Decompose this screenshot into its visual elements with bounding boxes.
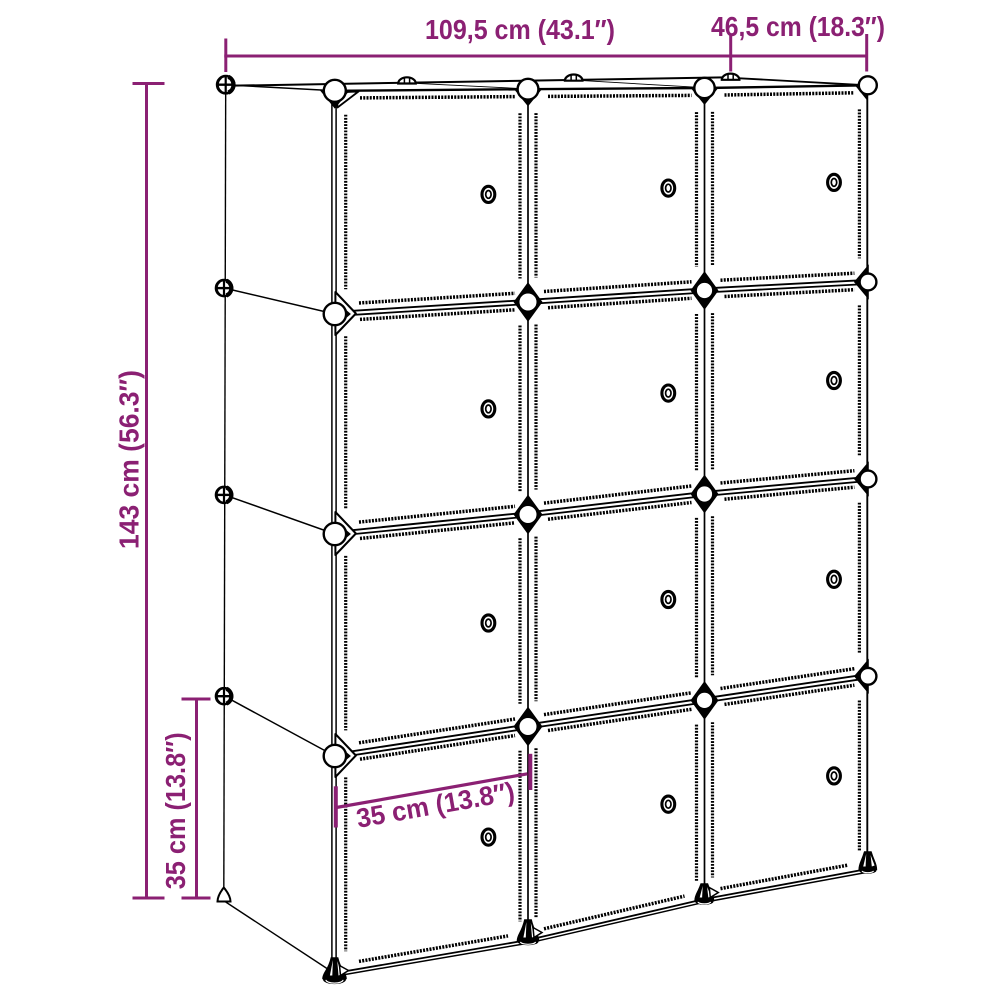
svg-text:46,5 cm (18.3″): 46,5 cm (18.3″) — [711, 11, 885, 42]
svg-text:35 cm (13.8″): 35 cm (13.8″) — [160, 732, 191, 889]
svg-text:109,5 cm (43.1″): 109,5 cm (43.1″) — [425, 14, 615, 45]
svg-text:143 cm (56.3″): 143 cm (56.3″) — [114, 370, 145, 549]
